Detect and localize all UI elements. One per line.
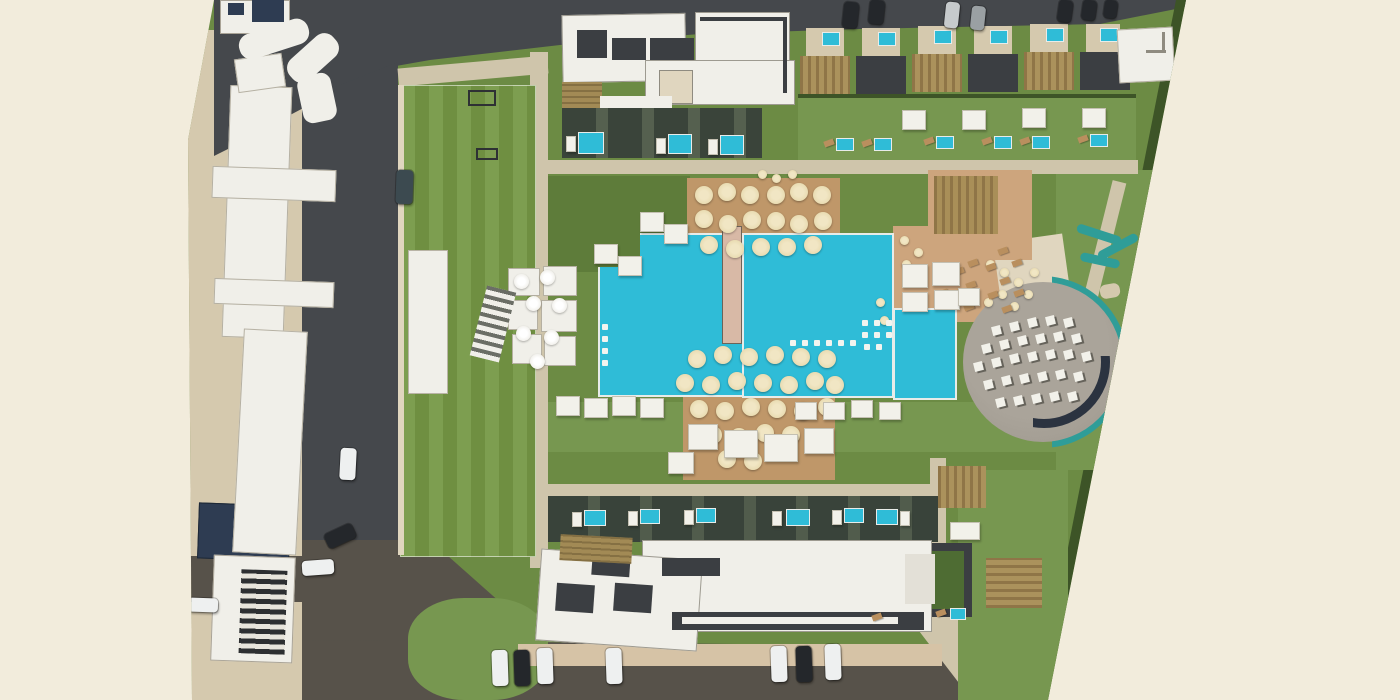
parasol-dot-16 [788, 170, 797, 179]
umbrella-30 [826, 376, 844, 394]
spa-courtyard-2 [613, 583, 653, 614]
white-umbrella-1 [514, 274, 529, 289]
pool-step-12 [602, 360, 608, 366]
umbrella-34 [768, 400, 786, 418]
daybed-32 [684, 510, 694, 525]
cabana-pool-s5 [844, 508, 864, 523]
pool-step-14 [802, 340, 808, 346]
pool-step-10 [602, 336, 608, 342]
umbrella-26 [728, 372, 746, 390]
pool-step-1 [862, 320, 868, 326]
ne-pool-6 [1100, 28, 1118, 42]
car-19 [824, 644, 841, 681]
north-gate-roof [252, 0, 284, 22]
daybed-30 [572, 512, 582, 527]
umbrella-20 [740, 348, 758, 366]
car-4 [970, 5, 986, 30]
parasol-dot-1 [900, 236, 909, 245]
car-9 [339, 448, 357, 481]
daybed-15 [823, 402, 845, 420]
daybed-25 [1022, 108, 1046, 128]
spa-courtyard-1 [555, 583, 595, 614]
umbrella-11 [813, 186, 831, 204]
padel-court [408, 250, 448, 394]
ne-pool-b4 [994, 136, 1012, 149]
umbrella-33 [742, 398, 760, 416]
umbrella-32 [716, 402, 734, 420]
resort-site [0, 0, 1400, 700]
clubhouse-parapet-east [783, 17, 787, 93]
north-gate-booth [228, 3, 244, 15]
umbrella-2 [718, 183, 736, 201]
daybed-26 [1082, 108, 1106, 128]
umbrella-31 [690, 400, 708, 418]
umbrella-9 [767, 212, 785, 230]
cabana-pool-s6 [876, 509, 898, 525]
white-umbrella-6 [544, 330, 559, 345]
cabana-pool-s2 [640, 509, 660, 524]
cabana-pool-s3 [696, 508, 716, 523]
daybed-11 [902, 292, 928, 312]
daybed-16 [851, 400, 873, 418]
clubhouse-courtyard-1 [577, 30, 607, 58]
umbrella-1 [695, 186, 713, 204]
umbrella-14 [726, 240, 744, 258]
daybed-23 [902, 110, 926, 130]
cabana-pool-s4 [786, 509, 810, 526]
promenade-kiosk [234, 53, 286, 93]
umbrella-15 [752, 238, 770, 256]
ne-pool-3 [934, 30, 952, 44]
daybed-29 [708, 139, 718, 155]
spa-pergola [559, 534, 632, 564]
umbrella-21 [766, 346, 784, 364]
clubhouse-pergola-terrace [562, 82, 602, 110]
daybed-21 [804, 428, 834, 454]
pool-step-2 [874, 320, 880, 326]
daybed-1 [640, 212, 664, 232]
pool-step-13 [790, 340, 796, 346]
pool-step-5 [874, 332, 880, 338]
daybed-3 [594, 244, 618, 264]
restaurant-pergola [934, 176, 998, 234]
parasol-dot-14 [758, 170, 767, 179]
daybed-27 [566, 136, 576, 152]
ne-pool-5 [1046, 28, 1064, 42]
gatehouse-louvres [239, 569, 288, 655]
pool-step-16 [826, 340, 832, 346]
south-apron [518, 644, 942, 666]
ne-pergola-3 [912, 54, 962, 92]
car-8 [395, 170, 413, 205]
daybed-19 [724, 430, 758, 458]
white-umbrella-5 [516, 326, 531, 341]
daybed-9 [902, 264, 928, 288]
car-2 [868, 0, 885, 25]
umbrella-10 [790, 215, 808, 233]
umbrella-18 [688, 350, 706, 368]
daybed-35 [900, 511, 910, 526]
daybed-28 [656, 138, 666, 154]
white-umbrella-7 [530, 354, 545, 369]
clubhouse-courtyard-2 [612, 38, 646, 60]
umbrella-25 [702, 376, 720, 394]
se-pool-2 [950, 608, 966, 620]
pool-step-4 [862, 332, 868, 338]
ne-pool-b2 [874, 138, 892, 151]
car-10 [302, 559, 335, 576]
goal-north [468, 90, 496, 106]
car-1 [842, 1, 860, 28]
car-12 [188, 597, 218, 612]
pool-step-7 [864, 344, 870, 350]
daybed-5 [556, 396, 580, 416]
goal-mid [476, 148, 498, 160]
pool-step-15 [814, 340, 820, 346]
promenade-wing-1 [211, 166, 336, 202]
pool-step-6 [886, 332, 892, 338]
umbrella-7 [767, 186, 785, 204]
daybed-33 [772, 511, 782, 526]
car-6 [1081, 0, 1098, 21]
car-14 [513, 650, 530, 687]
pool-step-18 [850, 340, 856, 346]
ne-pool-b3 [936, 136, 954, 149]
parasol-dot-10 [1024, 290, 1033, 299]
ne-pool-4 [990, 30, 1008, 44]
promenade-building-south [232, 328, 308, 555]
umbrella-8 [790, 183, 808, 201]
resort-masterplan-render [0, 0, 1400, 700]
car-16 [605, 648, 622, 685]
umbrella-16 [778, 238, 796, 256]
white-umbrella-2 [540, 270, 555, 285]
umbrella-29 [806, 372, 824, 390]
ne-pool-b6 [1090, 134, 1108, 147]
parasol-dot-6 [1014, 278, 1023, 287]
umbrella-23 [818, 350, 836, 368]
umbrella-5 [719, 215, 737, 233]
se-pergola-2 [986, 558, 1042, 608]
daybed-20 [764, 434, 798, 462]
clubhouse-parapet-north [700, 17, 784, 21]
daybed-6 [584, 398, 608, 418]
car-3 [944, 1, 961, 28]
main-pool-east-extension [893, 308, 957, 400]
umbrella-27 [754, 374, 772, 392]
pool-step-9 [602, 324, 608, 330]
ne-pergola-2 [856, 56, 906, 94]
daybed-22 [668, 452, 694, 474]
umbrella-3 [741, 186, 759, 204]
parasol-dot-11 [1030, 268, 1039, 277]
car-17 [770, 646, 787, 683]
umbrella-13 [700, 236, 718, 254]
ne-pool-b1 [836, 138, 854, 151]
umbrella-6 [743, 211, 761, 229]
cabana-pool-s1 [584, 510, 606, 526]
spa-terrace-east [905, 554, 935, 604]
daybed-31 [628, 511, 638, 526]
umbrella-4 [695, 210, 713, 228]
cabana-pool-n1 [578, 132, 604, 154]
umbrella-22 [792, 348, 810, 366]
car-13 [491, 650, 508, 687]
pool-step-17 [838, 340, 844, 346]
car-7 [1103, 0, 1118, 19]
white-umbrella-4 [552, 298, 567, 313]
daybed-14 [795, 402, 817, 420]
daybed-4 [618, 256, 642, 276]
car-18 [795, 646, 812, 683]
parasol-dot-12 [876, 298, 885, 307]
field-west-wall [398, 85, 404, 555]
parasol-dot-2 [914, 248, 923, 257]
spa-courtyard-4 [662, 558, 720, 576]
se-pergola-1 [938, 466, 986, 508]
ne-court [1117, 27, 1176, 84]
ne-pool-b5 [1032, 136, 1050, 149]
white-umbrella-3 [526, 296, 541, 311]
ne-pergola-4 [968, 54, 1018, 92]
umbrella-28 [780, 376, 798, 394]
umbrella-24 [676, 374, 694, 392]
ne-pool-1 [822, 32, 840, 46]
daybed-17 [879, 402, 901, 420]
pool-step-8 [876, 344, 882, 350]
walkway-pool-north [548, 160, 1138, 174]
pool-step-3 [886, 320, 892, 326]
umbrella-12 [814, 212, 832, 230]
cabana-pool-n2 [668, 134, 692, 154]
daybed-18 [688, 424, 718, 450]
ne-hedge [798, 94, 1136, 98]
daybed-8 [640, 398, 664, 418]
umbrella-19 [714, 346, 732, 364]
daybed-36 [950, 522, 980, 540]
daybed-2 [664, 224, 688, 244]
parasol-dot-7 [998, 290, 1007, 299]
ne-pool-2 [878, 32, 896, 46]
promenade-wing-2 [214, 278, 335, 308]
car-15 [536, 648, 553, 685]
ne-court-line-2 [1162, 32, 1165, 52]
pool-step-11 [602, 348, 608, 354]
daybed-34 [832, 510, 842, 525]
cabana-pool-n3 [720, 135, 744, 155]
clubhouse-courtyard-3 [650, 38, 694, 60]
parasol-dot-15 [772, 174, 781, 183]
daybed-13 [958, 288, 980, 306]
daybed-12 [934, 290, 960, 310]
daybed-24 [962, 110, 986, 130]
lawn-northeast [798, 96, 1136, 164]
spa-recess-south-inner [682, 617, 898, 624]
daybed-10 [932, 262, 960, 286]
ne-pergola-5 [1024, 52, 1074, 90]
umbrella-17 [804, 236, 822, 254]
daybed-7 [612, 396, 636, 416]
ne-pergola-1 [800, 56, 850, 94]
